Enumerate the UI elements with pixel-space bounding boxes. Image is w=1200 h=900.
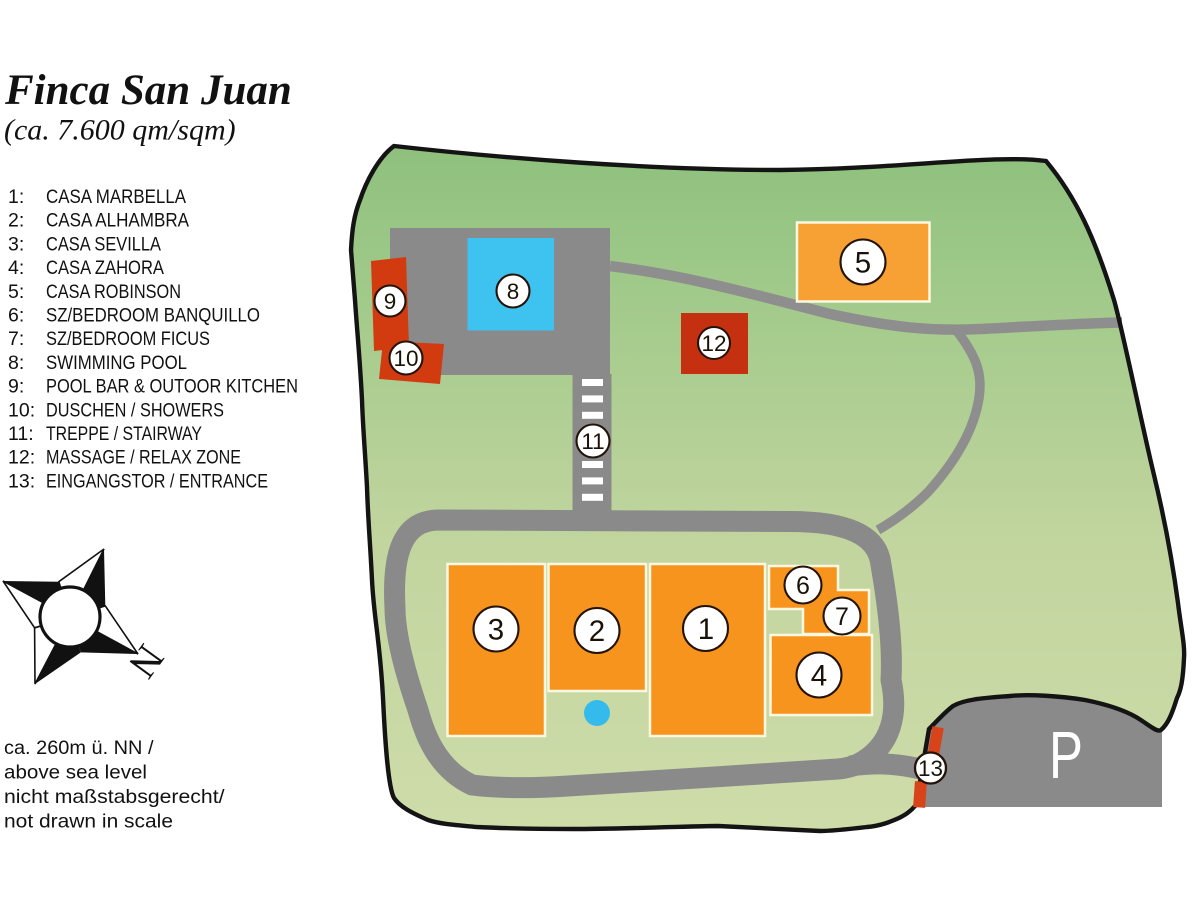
svg-text:9:: 9: xyxy=(8,376,24,398)
svg-text:CASA ALHAMBRA: CASA ALHAMBRA xyxy=(46,210,189,232)
svg-text:10:: 10: xyxy=(8,399,35,421)
svg-text:3: 3 xyxy=(488,614,504,647)
svg-text:EINGANGSTOR / ENTRANCE: EINGANGSTOR / ENTRANCE xyxy=(46,470,268,492)
svg-text:8: 8 xyxy=(507,279,520,304)
svg-text:7: 7 xyxy=(835,603,849,631)
svg-text:ca. 260m ü. NN /: ca. 260m ü. NN / xyxy=(4,737,154,759)
svg-text:POOL BAR & OUTOOR KITCHEN: POOL BAR & OUTOOR KITCHEN xyxy=(46,376,298,398)
svg-text:Finca San Juan: Finca San Juan xyxy=(4,67,292,114)
svg-text:(ca. 7.600 qm/sqm): (ca. 7.600 qm/sqm) xyxy=(4,114,236,147)
svg-text:12: 12 xyxy=(701,331,726,356)
svg-text:1:: 1: xyxy=(8,186,24,208)
svg-text:CASA ROBINSON: CASA ROBINSON xyxy=(46,281,181,303)
svg-text:5: 5 xyxy=(855,247,871,280)
svg-text:P: P xyxy=(1049,717,1083,792)
svg-text:6:: 6: xyxy=(8,305,24,327)
svg-text:5:: 5: xyxy=(8,281,24,303)
svg-text:TREPPE / STAIRWAY: TREPPE / STAIRWAY xyxy=(46,423,202,445)
svg-text:SWIMMING POOL: SWIMMING POOL xyxy=(46,352,187,374)
svg-text:8:: 8: xyxy=(8,352,24,374)
svg-text:1: 1 xyxy=(698,613,714,646)
svg-text:12:: 12: xyxy=(8,447,35,469)
svg-text:2:: 2: xyxy=(8,210,24,232)
svg-text:13: 13 xyxy=(918,756,943,781)
svg-text:CASA SEVILLA: CASA SEVILLA xyxy=(46,233,161,255)
svg-text:2: 2 xyxy=(589,615,605,648)
svg-text:CASA MARBELLA: CASA MARBELLA xyxy=(46,186,186,208)
svg-text:CASA ZAHORA: CASA ZAHORA xyxy=(46,257,164,279)
svg-text:nicht maßstabsgerecht/: nicht maßstabsgerecht/ xyxy=(4,786,225,808)
svg-text:SZ/BEDROOM BANQUILLO: SZ/BEDROOM BANQUILLO xyxy=(46,305,260,327)
svg-text:6: 6 xyxy=(796,572,810,600)
svg-text:3:: 3: xyxy=(8,233,24,255)
svg-text:4:: 4: xyxy=(8,257,24,279)
svg-text:not drawn in scale: not drawn in scale xyxy=(4,811,173,833)
svg-text:DUSCHEN / SHOWERS: DUSCHEN / SHOWERS xyxy=(46,399,224,421)
svg-text:4: 4 xyxy=(811,660,827,693)
svg-text:13:: 13: xyxy=(8,470,35,492)
svg-text:10: 10 xyxy=(393,346,418,371)
svg-text:11: 11 xyxy=(581,429,604,454)
svg-text:above sea level: above sea level xyxy=(4,762,147,784)
svg-text:9: 9 xyxy=(384,289,397,314)
svg-text:11:: 11: xyxy=(8,423,34,445)
svg-text:SZ/BEDROOM FICUS: SZ/BEDROOM FICUS xyxy=(46,328,210,350)
svg-text:MASSAGE / RELAX ZONE: MASSAGE / RELAX ZONE xyxy=(46,447,241,469)
svg-text:7:: 7: xyxy=(8,328,24,350)
